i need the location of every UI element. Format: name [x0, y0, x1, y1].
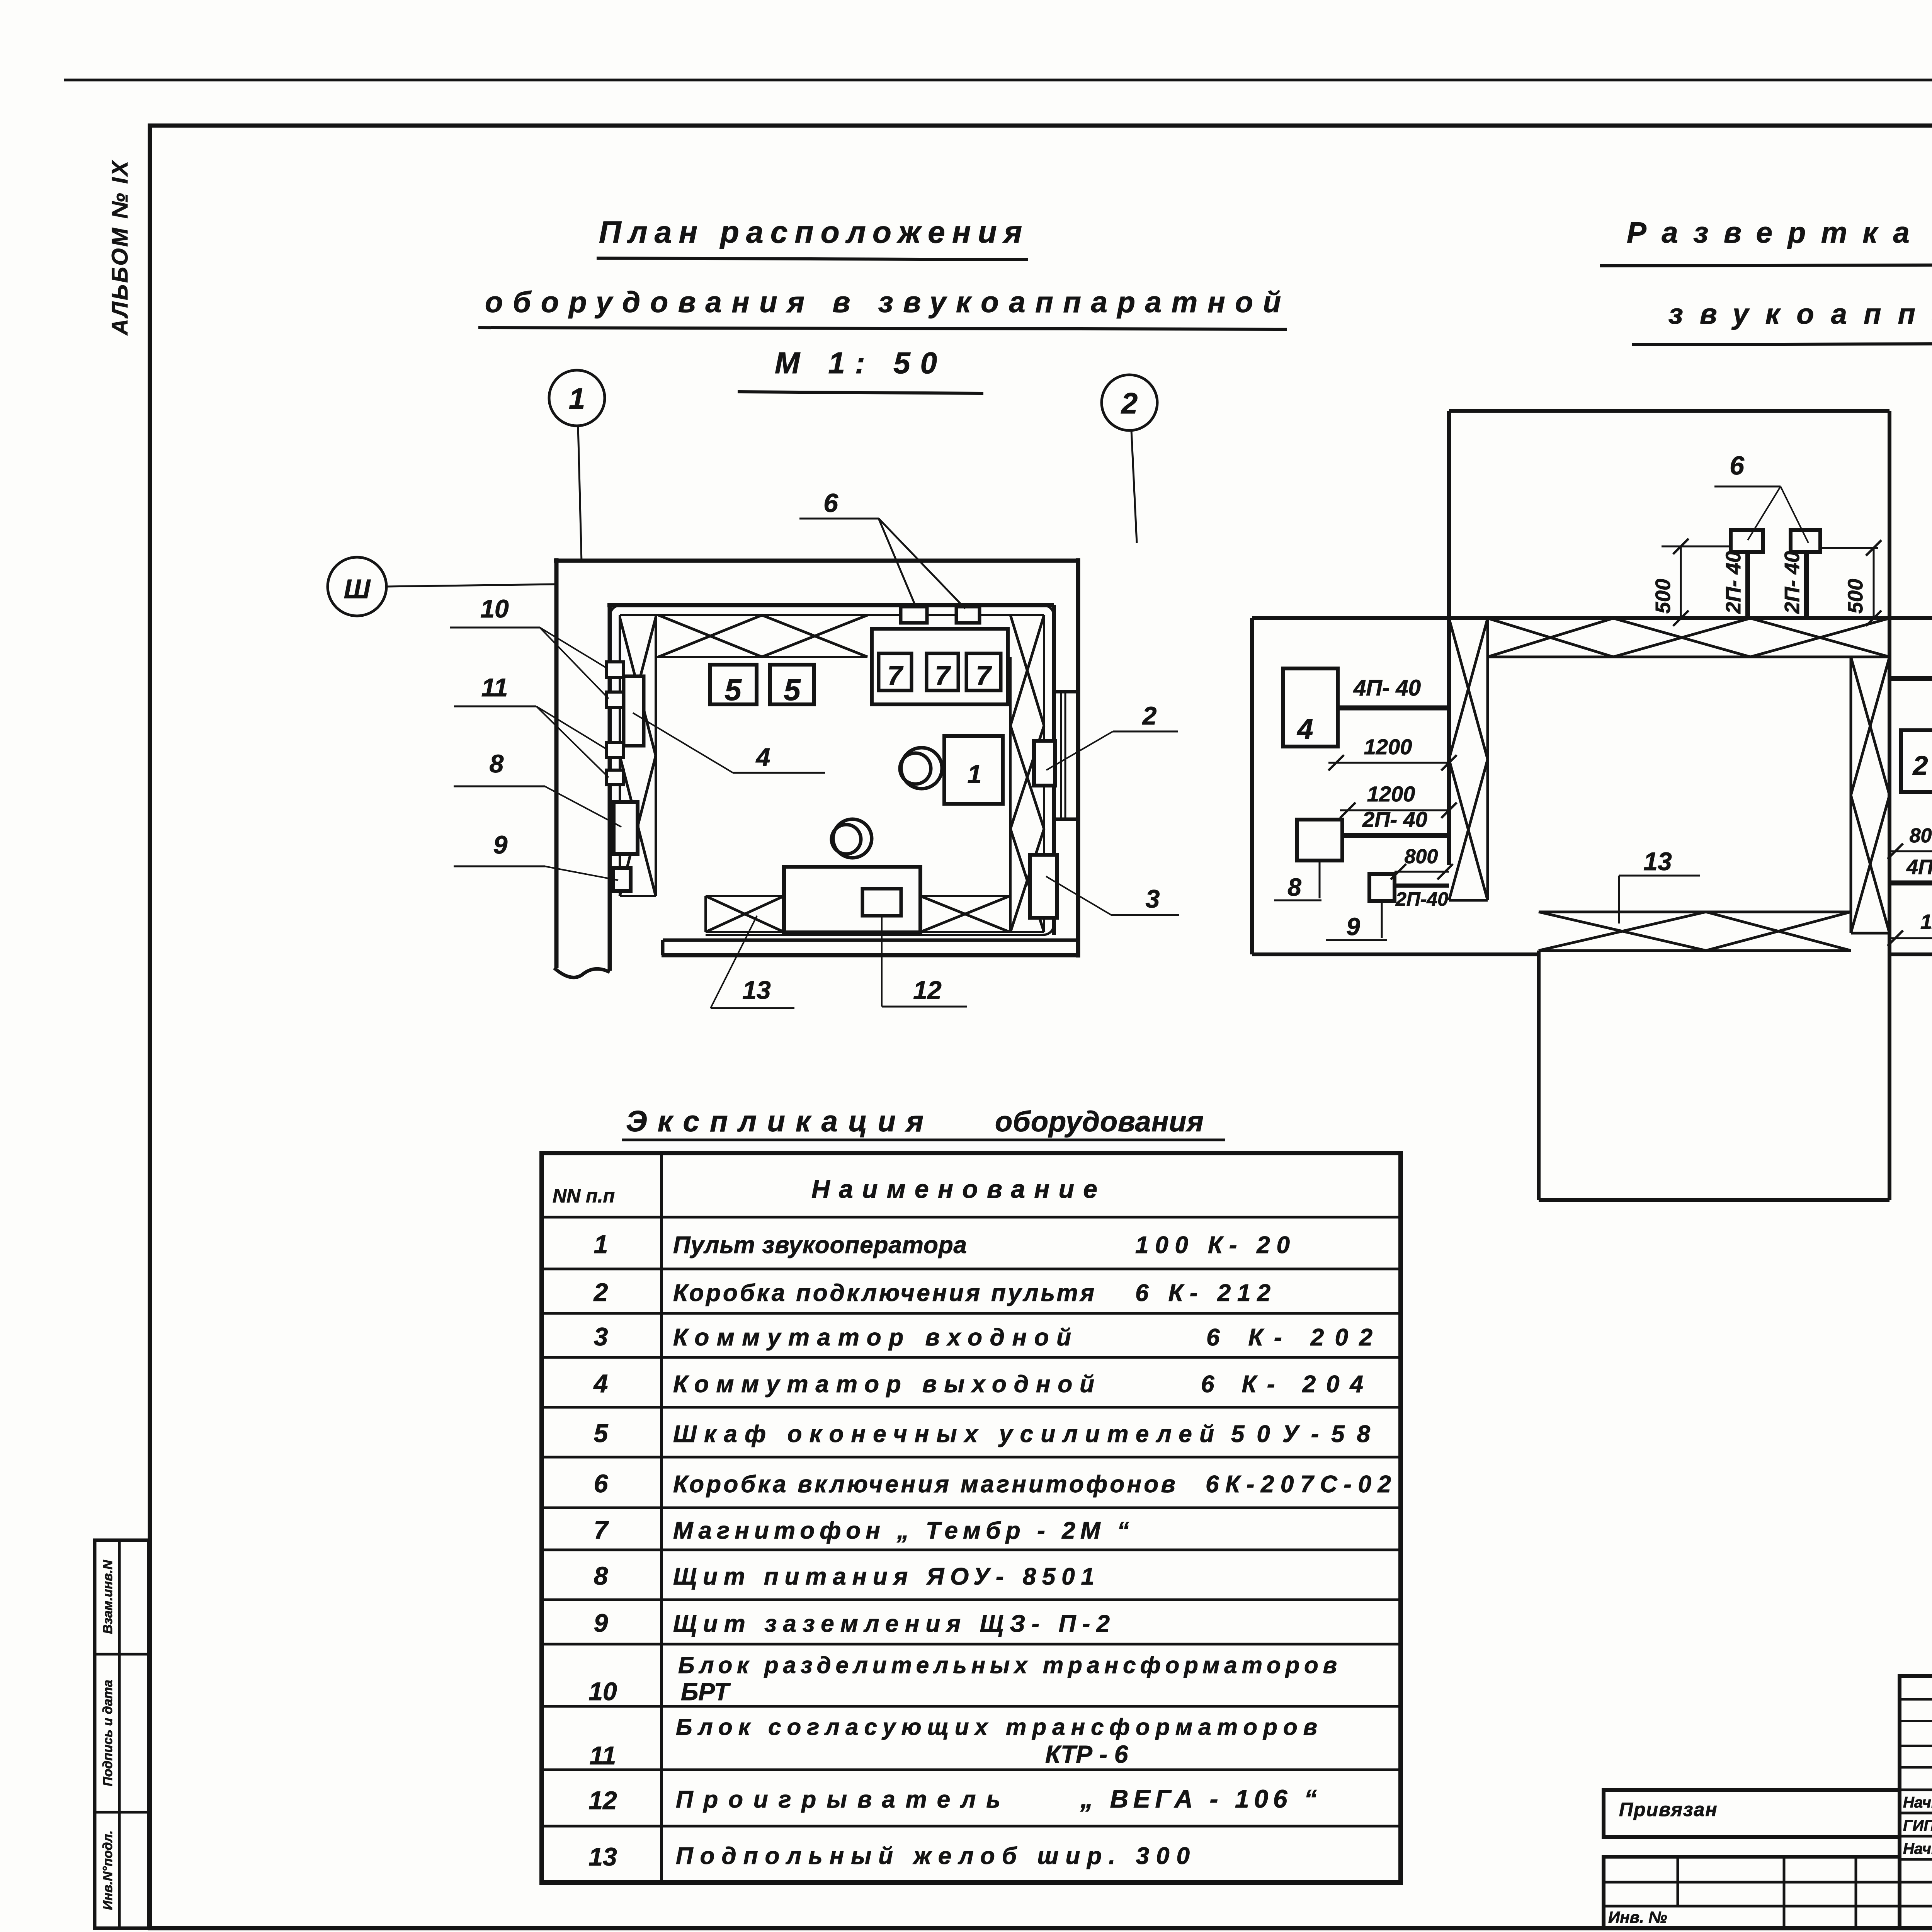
svg-text:7: 7: [935, 660, 951, 690]
svg-text:800: 800: [1405, 845, 1438, 868]
svg-text:Инв. №: Инв. №: [1608, 1908, 1667, 1926]
svg-text:Экспликация: Экспликация: [626, 1105, 923, 1138]
svg-text:оборудования: оборудования: [995, 1105, 1204, 1138]
svg-text:9: 9: [594, 1609, 608, 1637]
svg-text:АЛЬБОМ № IX: АЛЬБОМ № IX: [107, 160, 133, 336]
svg-text:13: 13: [742, 976, 770, 1004]
svg-text:1: 1: [569, 383, 585, 415]
svg-text:6: 6: [594, 1469, 609, 1498]
svg-text:8: 8: [490, 749, 504, 778]
svg-text:Нач.отд: Нач.отд: [1903, 1794, 1932, 1811]
svg-text:5: 5: [784, 673, 801, 707]
svg-text:2: 2: [1142, 701, 1157, 730]
svg-text:Щит питания ЯОУ- 8501: Щит питания ЯОУ- 8501: [673, 1563, 1094, 1590]
svg-text:4П- 40: 4П- 40: [1353, 675, 1421, 701]
svg-text:3: 3: [1146, 884, 1160, 913]
svg-text:5: 5: [594, 1419, 609, 1447]
svg-text:8: 8: [1287, 873, 1301, 901]
svg-text:План расположения: План расположения: [599, 215, 1022, 249]
svg-text:Коробка подключения пультя: Коробка подключения пультя: [673, 1280, 1094, 1306]
svg-text:12: 12: [588, 1786, 617, 1815]
svg-text:500: 500: [1651, 579, 1675, 614]
svg-text:1200: 1200: [1364, 735, 1412, 759]
svg-text:2П- 40: 2П- 40: [1781, 551, 1804, 614]
svg-text:2: 2: [1121, 387, 1138, 420]
svg-text:ГИП: ГИП: [1903, 1817, 1932, 1834]
svg-text:Взам.инв.N: Взам.инв.N: [100, 1560, 115, 1634]
svg-text:Инв.N°подл.: Инв.N°подл.: [100, 1830, 115, 1910]
svg-text:11: 11: [481, 673, 508, 702]
svg-text:Блок согласующих трансформа: Блок согласующих трансформаторов: [676, 1714, 1317, 1740]
svg-text:Коробка включения магнитофонов: Коробка включения магнитофонов: [673, 1471, 1175, 1498]
svg-text:7: 7: [888, 660, 904, 690]
svg-text:1200: 1200: [1920, 910, 1932, 934]
svg-text:Привязан: Привязан: [1619, 1799, 1718, 1820]
svg-text:„ ВЕГА - 106 “: „ ВЕГА - 106 “: [1080, 1784, 1317, 1813]
svg-text:2: 2: [593, 1278, 608, 1306]
svg-text:12: 12: [913, 976, 942, 1004]
svg-text:1: 1: [968, 760, 982, 788]
svg-text:6: 6: [1730, 451, 1745, 480]
svg-text:3: 3: [594, 1322, 608, 1351]
svg-text:2П- 40: 2П- 40: [1722, 551, 1745, 614]
svg-text:4П- 40: 4П- 40: [1906, 855, 1932, 879]
svg-text:13: 13: [1643, 847, 1672, 876]
svg-text:11: 11: [590, 1741, 616, 1770]
svg-text:1: 1: [594, 1230, 608, 1259]
svg-text:7: 7: [976, 660, 992, 690]
svg-text:4: 4: [1296, 713, 1313, 745]
svg-text:500: 500: [1844, 579, 1867, 614]
svg-text:9: 9: [1346, 913, 1360, 940]
svg-text:Подпись и дата: Подпись и дата: [100, 1680, 115, 1786]
svg-text:6: 6: [823, 488, 838, 518]
svg-text:9: 9: [493, 830, 508, 859]
svg-text:100 К- 20: 100 К- 20: [1135, 1232, 1290, 1259]
svg-text:1200: 1200: [1367, 782, 1415, 806]
svg-text:10: 10: [588, 1677, 617, 1706]
svg-text:5: 5: [724, 673, 742, 707]
svg-text:2П- 40: 2П- 40: [1362, 807, 1427, 832]
svg-text:8: 8: [594, 1561, 608, 1590]
svg-text:800: 800: [1910, 825, 1932, 847]
svg-text:Ш: Ш: [344, 574, 371, 604]
svg-text:10: 10: [480, 594, 509, 623]
svg-text:Пульт звукооператора: Пульт звукооператора: [673, 1232, 967, 1259]
svg-text:БРТ: БРТ: [681, 1678, 731, 1706]
svg-text:2: 2: [1912, 750, 1928, 781]
svg-text:7: 7: [594, 1515, 609, 1544]
svg-text:2П-40: 2П-40: [1395, 888, 1448, 910]
svg-text:КТР - 6: КТР - 6: [1045, 1740, 1128, 1768]
svg-text:4: 4: [593, 1369, 608, 1398]
svg-text:4: 4: [755, 743, 770, 771]
svg-text:NN п.п: NN п.п: [553, 1185, 615, 1207]
svg-text:Нач.гр.: Нач.гр.: [1903, 1840, 1932, 1857]
svg-text:13: 13: [588, 1842, 617, 1871]
